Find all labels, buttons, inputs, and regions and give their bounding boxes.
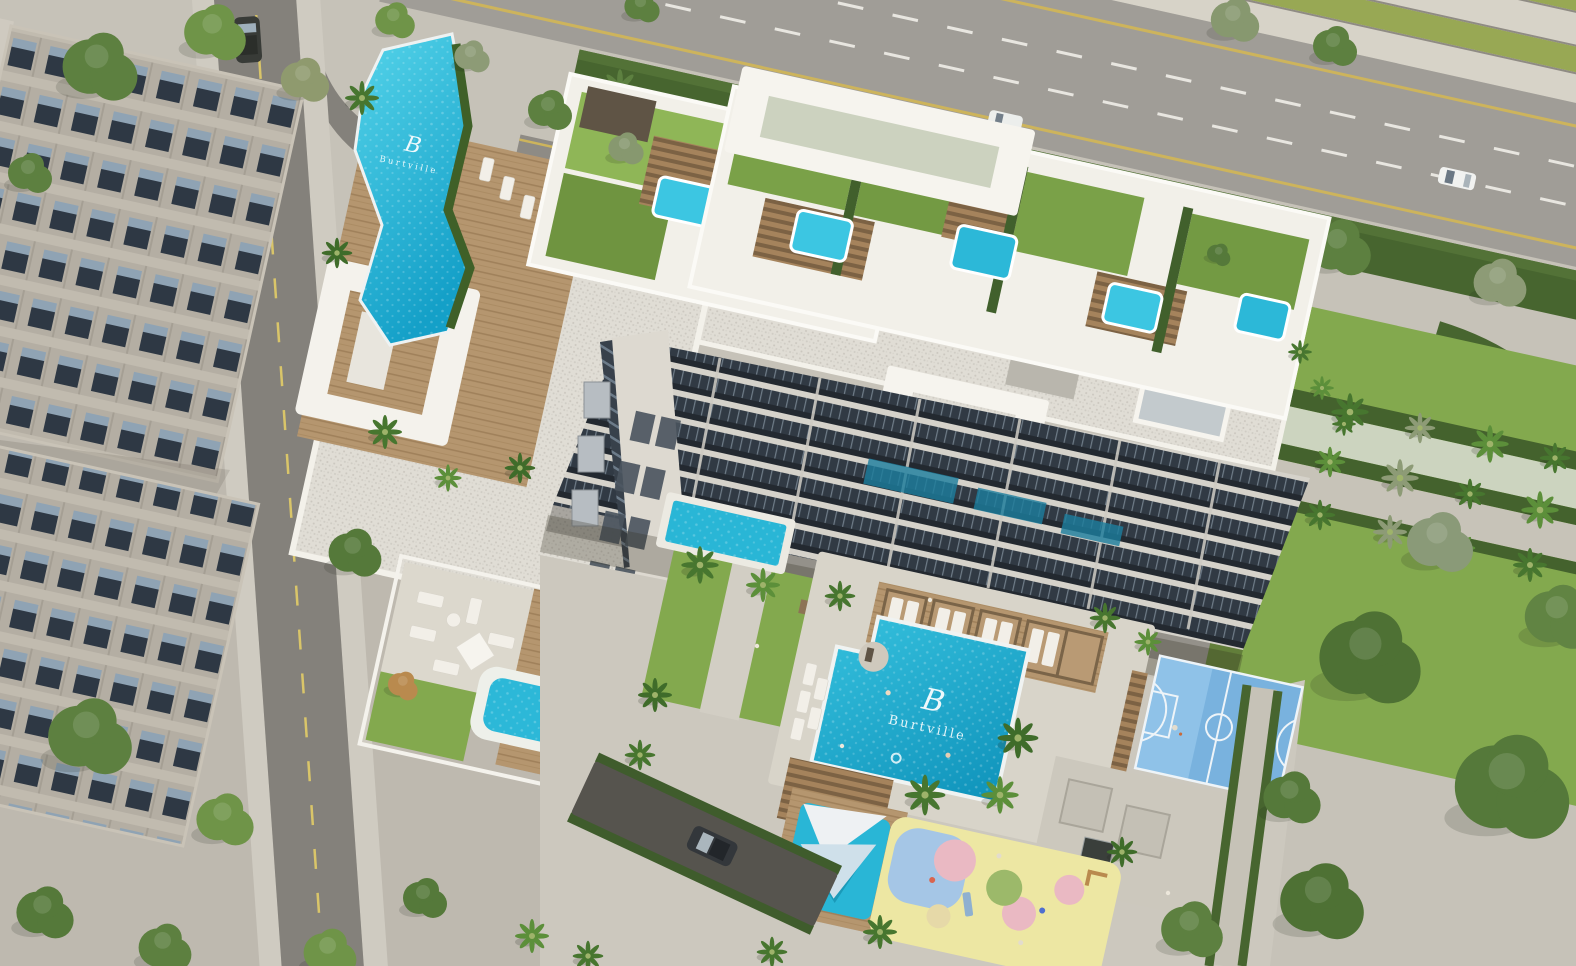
- rooftop-pool: B Burtville: [355, 34, 470, 345]
- aerial-render: B Burtville: [0, 0, 1576, 966]
